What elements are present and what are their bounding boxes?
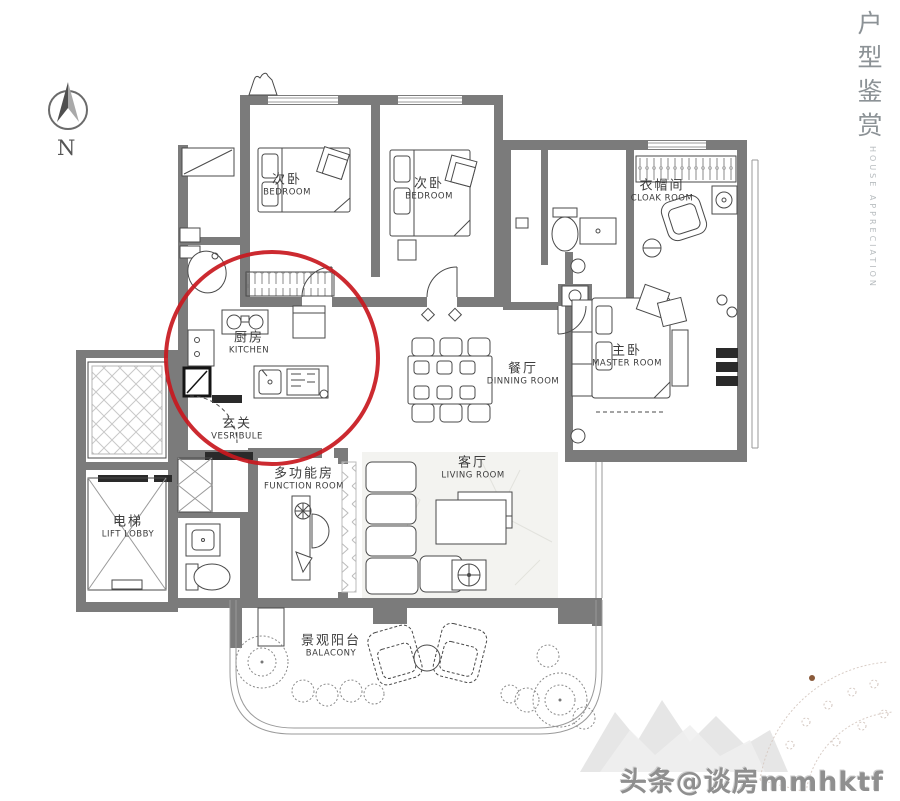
kitchen-island-icon <box>254 366 328 398</box>
wardrobe-icon <box>246 272 334 296</box>
room-label-bedroom-2: 次卧 BEDROOM <box>405 178 453 203</box>
watermark: 头条@谈房mmhktf <box>620 760 884 799</box>
bed-icon <box>390 150 477 260</box>
floor-plan-page: 次卧 BEDROOM 次卧 BEDROOM 衣帽间 CLOAK ROOM 主卧 … <box>0 0 900 801</box>
balcony-chair-icon <box>365 621 488 687</box>
room-label-living-room: 客厅 LIVING ROOM <box>441 457 504 482</box>
chimney-icon <box>249 73 277 95</box>
kitchen-window-icon <box>184 368 210 396</box>
coffee-table-icon <box>436 492 512 544</box>
round-table-icon <box>414 645 440 671</box>
room-label-cloak-room: 衣帽间 CLOAK ROOM <box>631 180 694 205</box>
page-subtitle: HOUSE APPRECIATION <box>868 146 877 289</box>
room-label-vestibule: 玄关 VESRIBULE <box>211 418 263 443</box>
sink-icon <box>186 524 220 556</box>
toilet-icon <box>186 564 230 590</box>
room-label-master-room: 主卧 MASTER ROOM <box>592 345 662 370</box>
room-label-function-room: 多功能房 FUNCTION ROOM <box>264 468 344 493</box>
room-label-balcony: 景观阳台 BALACONY <box>301 635 361 660</box>
compass-icon <box>49 82 87 129</box>
toilet-icon <box>552 208 578 251</box>
elevator-shaft-icon <box>88 362 166 458</box>
room-label-kitchen: 厨房 KITCHEN <box>229 332 269 357</box>
desk-icon <box>292 496 329 580</box>
cabinet-icon <box>712 186 737 214</box>
sink-cabinet-icon <box>188 330 214 366</box>
room-label-lift-lobby: 电梯 LIFT LOBBY <box>102 516 154 541</box>
tree-icon <box>236 636 595 729</box>
floor-plan-drawing <box>0 0 900 801</box>
fridge-icon <box>293 306 325 338</box>
room-label-dining-room: 餐厅 DINNING ROOM <box>487 363 560 388</box>
room-label-bedroom-1: 次卧 BEDROOM <box>263 174 311 199</box>
dining-table-icon <box>408 338 492 422</box>
page-title: 户型鉴赏 <box>850 10 886 146</box>
closet-icon <box>178 458 212 512</box>
sliding-door-icon <box>342 462 356 592</box>
floor-lamp-icon <box>452 560 486 590</box>
tv-console-icon <box>716 295 738 386</box>
compass-north-label: N <box>57 136 75 160</box>
sink-icon <box>580 218 616 244</box>
pendant-lamp-icon <box>422 308 462 321</box>
